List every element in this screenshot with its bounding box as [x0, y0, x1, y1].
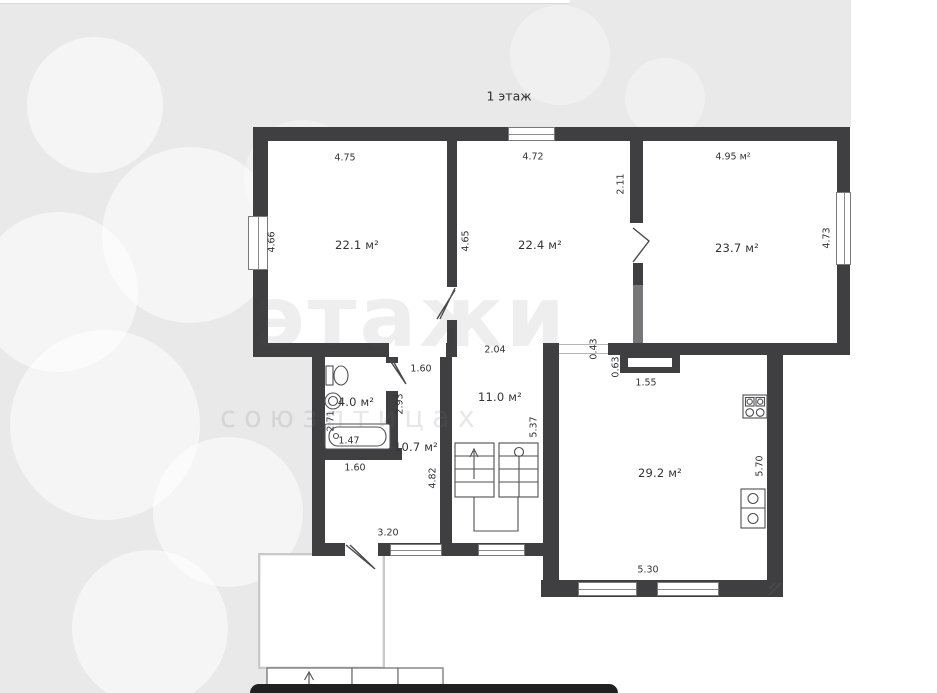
stairs-up-arrow-icon [470, 449, 478, 479]
door-leaf-room3 [633, 228, 649, 262]
room-label-10-7: 10.7 м² [394, 440, 438, 454]
dim-4-95: 4.95 м² [715, 152, 750, 163]
dim-1-55: 1.55 [635, 378, 656, 389]
floor-title: 1 этаж [487, 89, 532, 104]
dim-2-11: 2.11 [616, 173, 627, 194]
dim-4-82: 4.82 [428, 467, 439, 488]
staircase [455, 443, 538, 531]
dim-2-93: 2.93 [395, 393, 406, 414]
dim-2-71: 2.71 [326, 410, 337, 431]
toilet-icon [326, 366, 333, 385]
room-label-22-1: 22.1 м² [335, 238, 379, 252]
dim-5-30: 5.30 [637, 565, 658, 576]
dim-5-37: 5.37 [529, 416, 540, 437]
stairs-pole-icon [515, 448, 524, 457]
kitchen-fixtures [741, 395, 781, 595]
dim-0-63: 0.63 [611, 356, 622, 377]
wall-corner-hatch [769, 583, 781, 595]
room-label-4-0: 4.0 м² [338, 395, 374, 409]
stairs-landing-path [474, 497, 518, 531]
dim-4-65: 4.65 [461, 230, 472, 251]
dim-4-75: 4.75 [334, 153, 355, 164]
room-label-22-4: 22.4 м² [518, 238, 562, 252]
dim-0-43: 0.43 [589, 338, 600, 359]
floor-plan-canvas: этажи союзптицах 1 этаж 22.1 м² 22.4 м² … [0, 0, 937, 693]
dim-3-20: 3.20 [377, 528, 398, 539]
plan-line-drawings [0, 0, 937, 693]
room-label-29-2: 29.2 м² [638, 466, 682, 480]
door-leaf-room1-room2 [437, 288, 455, 319]
dim-1-60-lower: 1.60 [344, 463, 365, 474]
room-label-23-7: 23.7 м² [715, 241, 759, 255]
dim-1-60-upper: 1.60 [410, 364, 431, 375]
door-leaf-porch [346, 545, 375, 569]
dim-2-04: 2.04 [484, 345, 505, 356]
dim-5-70: 5.70 [755, 455, 766, 476]
dim-4-72: 4.72 [522, 152, 543, 163]
door-leaf-corridor [389, 359, 406, 384]
bottom-sheet-edge[interactable] [250, 684, 618, 693]
dim-4-66: 4.66 [267, 231, 278, 252]
toilet-bowl-icon [334, 366, 348, 385]
dim-4-73: 4.73 [822, 227, 833, 248]
room-label-11-0: 11.0 м² [478, 390, 522, 404]
dim-1-47: 1.47 [338, 436, 359, 447]
